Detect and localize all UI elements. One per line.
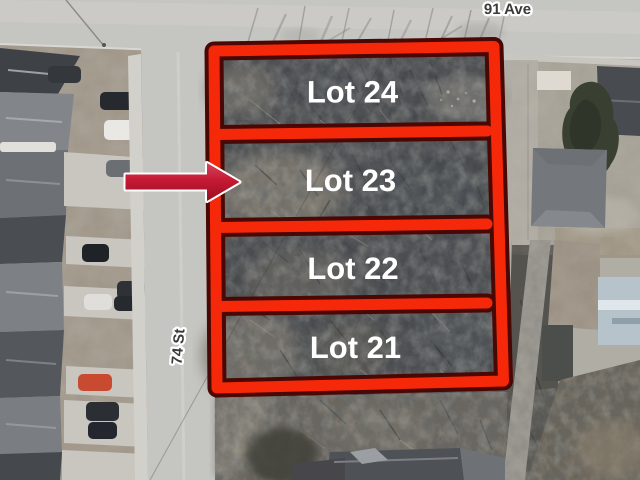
svg-text:Lot 24: Lot 24 <box>307 75 399 110</box>
svg-text:74 St: 74 St <box>168 328 188 365</box>
svg-text:Lot 22: Lot 22 <box>307 251 398 286</box>
svg-text:91 Ave: 91 Ave <box>484 1 531 18</box>
svg-text:Lot 21: Lot 21 <box>310 330 401 365</box>
svg-text:Lot 23: Lot 23 <box>305 163 396 198</box>
